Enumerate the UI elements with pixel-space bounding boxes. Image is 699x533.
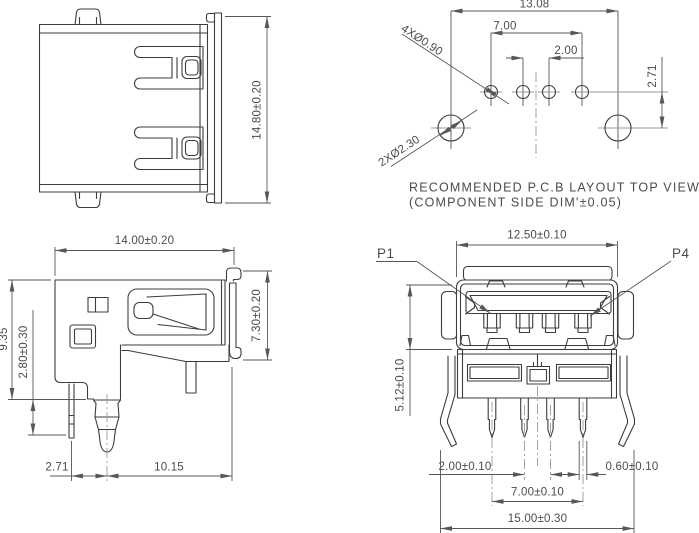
side-pin <box>69 384 74 438</box>
rear-flange <box>230 283 237 347</box>
callout-pin-holes-label: 4XØ0.90 <box>399 23 445 59</box>
flange-top-hook <box>207 14 215 23</box>
dimension-pin-width: 0.60±0.10 <box>557 461 658 475</box>
dimension-pin-span: 7.00±0.10 <box>492 487 583 502</box>
extension-lines <box>451 11 618 149</box>
flange-bottom-hook <box>207 194 215 203</box>
dim-pin-width-label: 0.60±0.10 <box>606 461 659 473</box>
dimension-height: 14.80±0.20 <box>225 17 271 204</box>
callout-mount-holes-label: 2XØ2.30 <box>377 134 423 170</box>
dim-pin-offset-label: 2.71 <box>45 462 68 474</box>
dim-pin-span-label: 7.00 <box>493 21 516 33</box>
dimension-depth: 14.00±0.20 <box>55 235 234 276</box>
dim-pin-pitch-label: 2.00 <box>554 45 577 57</box>
shell-spring-upper <box>135 47 204 90</box>
usb-shell-outer <box>457 280 618 350</box>
dimension-standoff: 2.80±0.30 <box>18 310 66 435</box>
hole-crosshairs <box>431 92 668 128</box>
dim-depth-label: 14.00±0.20 <box>115 235 174 247</box>
connector-side-view: 14.00±0.20 9.35 2.80±0.30 7.30±0.20 2.71… <box>0 235 272 481</box>
shell-body-outline <box>40 25 208 193</box>
rear-terminal <box>186 362 196 394</box>
dimension-hole-span: 13.08 <box>451 0 618 11</box>
dimension-pin-pitch: 2.00±0.10 <box>429 461 570 475</box>
dim-shell-width-label: 12.50±0.10 <box>507 230 566 242</box>
callout-mount-holes: 2XØ2.30 <box>377 110 477 169</box>
flange-bottom-hook <box>230 344 242 359</box>
pin1-label: P1 <box>377 246 395 261</box>
caption-line1: RECOMMENDED P.C.B LAYOUT TOP VIEW <box>409 181 699 195</box>
shell-lid <box>464 267 613 281</box>
pcb-layout-view: 13.08 7.00 2.00 2.71 4XØ0.90 2XØ2.30 REC… <box>377 0 699 210</box>
dim-pin-pitch-label: 2.00±0.10 <box>439 461 492 473</box>
latch-spring <box>128 289 214 335</box>
side-wing-right <box>618 292 634 340</box>
dim-height-label: 14.80±0.20 <box>252 80 264 139</box>
bottom-mount-tab <box>75 192 101 208</box>
dimension-row-offset: 2.71 <box>647 57 662 128</box>
shell-window <box>88 298 108 313</box>
side-body-outline <box>55 280 225 399</box>
technical-drawing-page: 14.80±0.20 13.08 7.00 2.00 2.71 <box>0 0 699 533</box>
connector-front-view: 12.50±0.10 P1 P4 5.12±0.10 2.00±0.10 0.6… <box>376 230 690 533</box>
shell-inner-edges <box>40 25 208 193</box>
dim-shell-height-label: 5.12±0.10 <box>395 359 407 412</box>
shell-dimple-inner <box>75 329 92 344</box>
pin4-label: P4 <box>672 246 690 261</box>
side-wing-left <box>442 292 458 340</box>
shell-spring-lower <box>135 127 204 170</box>
dim-body-height-label: 9.35 <box>0 327 10 350</box>
top-mount-tab <box>75 9 101 25</box>
dim-row-offset-label: 2.71 <box>647 64 659 87</box>
dim-peg-offset-label: 10.15 <box>154 462 184 474</box>
mount-leg-left <box>441 356 457 447</box>
dimension-pin-span: 7.00 <box>491 21 582 34</box>
caption-line2: (COMPONENT SIDE DIM'±0.05) <box>409 196 622 210</box>
dim-pin-span-label: 7.00±0.10 <box>511 487 564 499</box>
dim-flange-height-label: 7.30±0.20 <box>251 289 263 342</box>
flange-top-hook <box>227 268 242 281</box>
dim-standoff-label: 2.80±0.30 <box>18 326 30 379</box>
connector-top-view: 14.80±0.20 <box>40 9 272 208</box>
dimension-body-height: 9.35 <box>0 280 86 400</box>
rear-flange-strip <box>215 13 222 203</box>
usb-connector-drawing: 14.80±0.20 13.08 7.00 2.00 2.71 <box>0 0 699 533</box>
dimension-pin-pitch: 2.00 <box>506 45 584 58</box>
mount-leg-right <box>619 356 635 447</box>
dim-hole-span-label: 13.08 <box>520 0 550 11</box>
dimension-flange-height: 7.30±0.20 <box>243 271 272 360</box>
dim-overall-width-label: 15.00±0.30 <box>508 513 567 525</box>
base-wedge <box>122 345 229 362</box>
